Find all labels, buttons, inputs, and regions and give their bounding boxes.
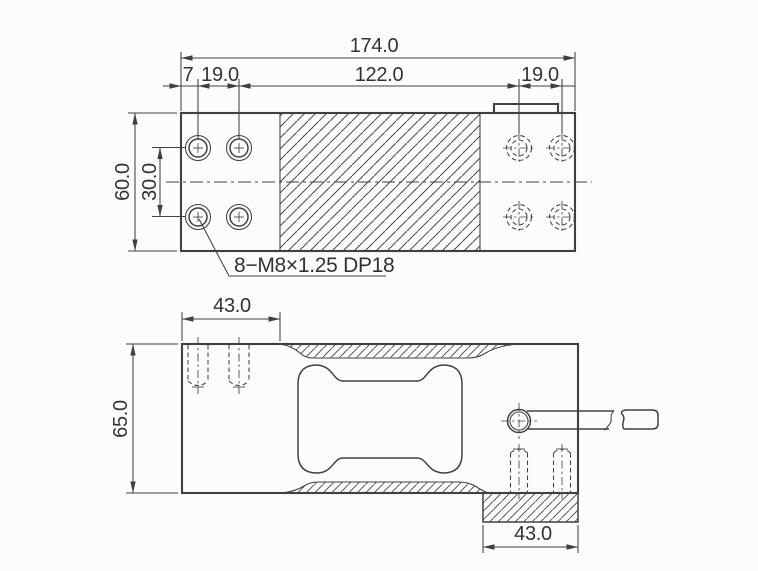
hidden-hole-side [511,444,528,499]
thread-note-label: 8−M8×1.25 DP18 [234,254,394,277]
dim-label-hole-row-pitch: 30.0 [139,163,161,201]
dim-label-body-height: 60.0 [112,163,134,201]
hidden-hole [503,132,535,164]
dim-label-hole-pitch-right: 19.0 [521,64,559,86]
dim-label-side-height: 65.0 [110,400,132,438]
dim-label-mount-left: 43.0 [213,295,251,317]
dim-label-overall-width: 174.0 [350,35,399,57]
dim-label-hole-pitch-left: 19.0 [201,64,239,86]
flexure-bone-cutout [298,365,462,473]
tapped-hole [227,205,252,230]
dim-label-edge-offset: 7 [183,64,194,86]
side-view: 43.0 65.0 43.0 [110,295,658,553]
hidden-hole [546,201,578,233]
hidden-hole-side [554,444,571,499]
dim-label-mount-right: 43.0 [514,523,552,545]
hidden-hole [546,132,578,164]
cable-end-segment [622,410,659,429]
hidden-hole [503,201,535,233]
side-view-body [182,344,578,493]
bottom-recess [283,482,488,493]
cable-assembly [501,403,658,439]
tapped-hole [227,136,252,161]
top-view: 174.0 7 19.0 122.0 19.0 60.0 30.0 8−M8×1… [112,35,592,277]
engineering-drawing-canvas: 174.0 7 19.0 122.0 19.0 60.0 30.0 8−M8×1… [0,0,758,571]
hidden-holes-bottom-right [511,444,571,499]
load-cell-drawing: 174.0 7 19.0 122.0 19.0 60.0 30.0 8−M8×1… [0,0,758,571]
mounting-block [483,493,578,522]
tapped-hole [186,136,211,161]
top-recess [280,344,523,358]
cable-exit-tab [494,104,558,112]
hidden-holes-top-left [188,337,249,394]
hidden-hole-side [229,337,249,394]
dim-label-center-span: 122.0 [355,64,404,86]
hidden-hole-side [188,337,208,394]
cable-break-mark [604,411,614,430]
tapped-hole [186,205,211,230]
